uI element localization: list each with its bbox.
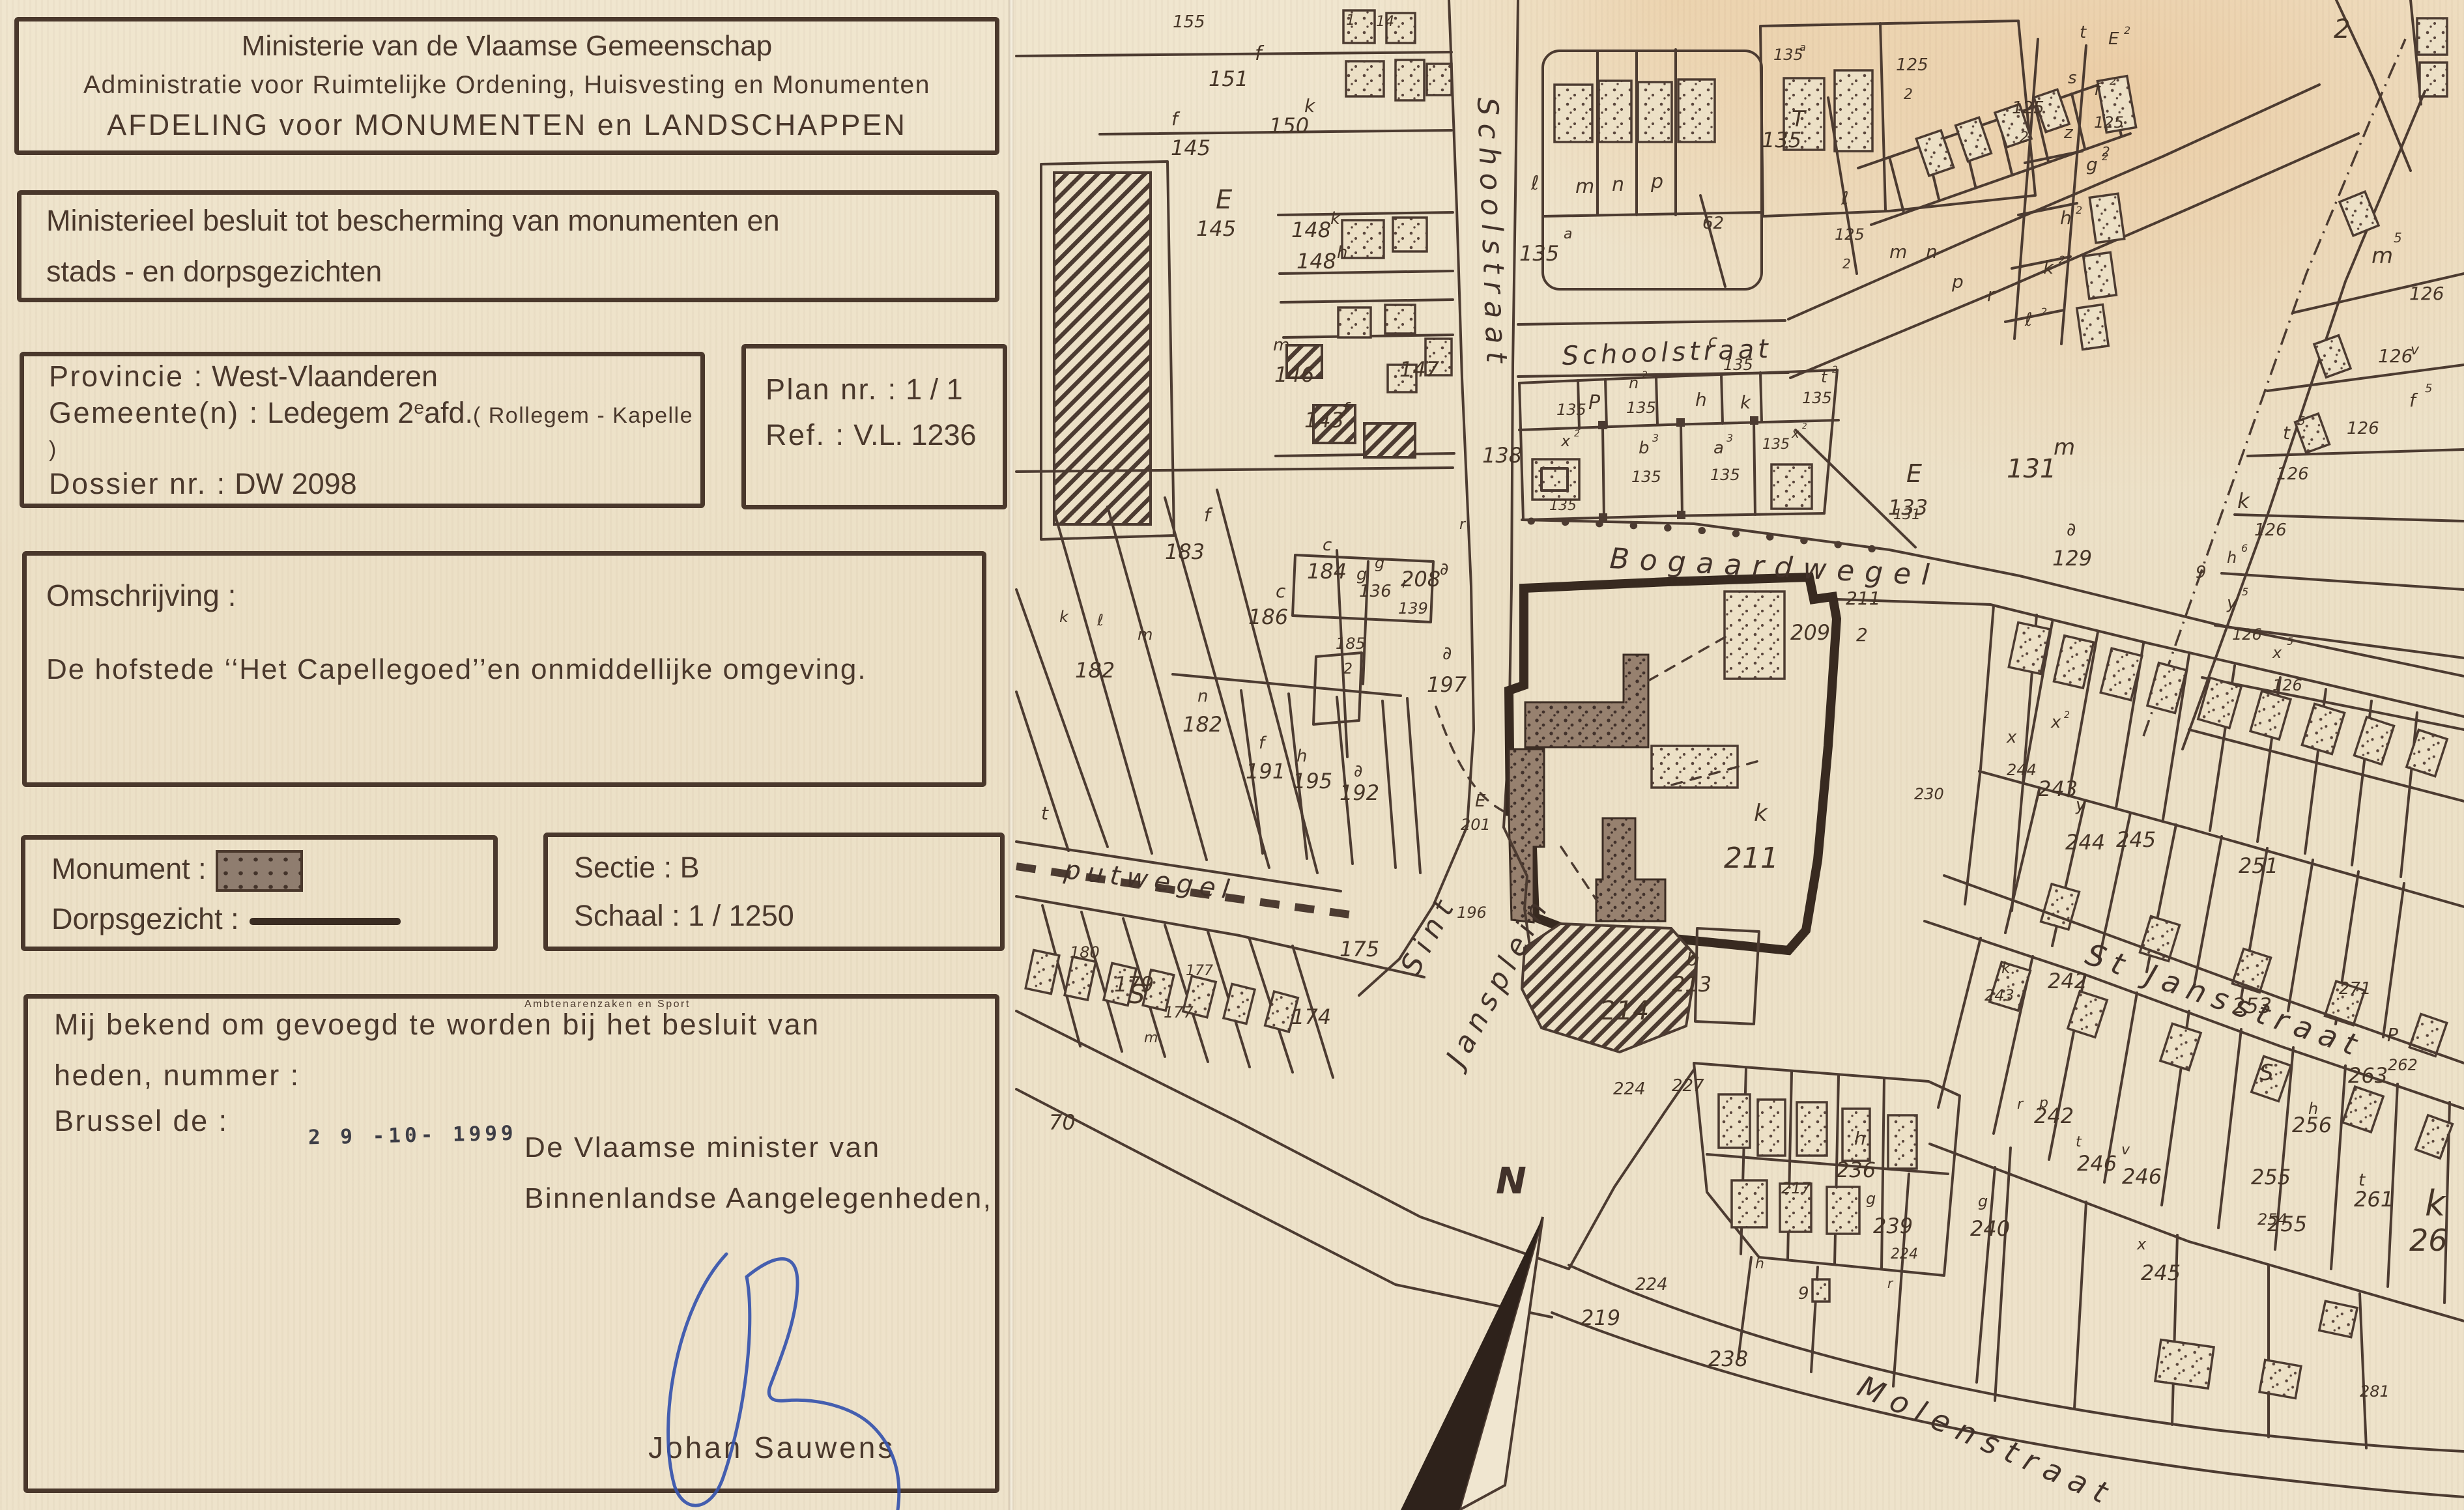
province-row: Provincie : West-Vlaanderen	[49, 360, 700, 393]
parcel-label: 239	[1873, 1214, 1913, 1238]
parcel-label: k	[2237, 489, 2250, 513]
parcel-label: 2	[1856, 624, 1868, 646]
parcel-label: 211	[1846, 588, 1880, 609]
parcel-label: 209	[1790, 620, 1830, 645]
parcel-label: h	[1695, 389, 1707, 410]
parcel-label: r	[1887, 1275, 1894, 1291]
certify-line2: heden, nummer :	[54, 1059, 300, 1092]
parcel-label: t	[2283, 422, 2291, 444]
parcel-label: 271	[2339, 979, 2371, 999]
parcel-label: E	[1475, 791, 1486, 811]
cadastral-map: N SchoolstraatSchoolstraatBogaardwegelSt…	[1003, 0, 2464, 1510]
plan-ref-box: Plan nr. : 1 / 1 Ref. : V.L. 1236	[741, 344, 1007, 509]
parcel-label: 195	[1293, 769, 1332, 793]
parcel-label: 242	[2048, 969, 2087, 993]
parcel-label: 148	[1296, 249, 1336, 274]
parcel-label: c	[1323, 535, 1332, 555]
parcel-label: 196	[1457, 904, 1487, 922]
monument-label: Monument :	[51, 852, 207, 885]
parcel-label: 246	[2077, 1151, 2117, 1176]
parcel-label: g	[1375, 554, 1384, 572]
scale-row: Schaal : 1 / 1250	[574, 899, 1000, 933]
parcel-label: 143	[1304, 408, 1344, 433]
section-row: Sectie : B	[574, 851, 1000, 885]
parcel-label: 5	[2298, 414, 2305, 428]
parcel-label: b	[1639, 438, 1650, 458]
parcel-label: x	[1791, 425, 1799, 441]
section-value: B	[680, 851, 700, 884]
parcel-label: 2	[1832, 365, 1838, 375]
parcel-label: 2	[2041, 306, 2047, 318]
monument-swatch	[216, 850, 303, 892]
certify-line1: Mij bekend om gevoegd te worden bij het …	[54, 1008, 820, 1042]
scale-value: 1 / 1250	[688, 899, 794, 932]
parcel-label: m	[1144, 1030, 1158, 1046]
parcel-label: x	[1560, 432, 1571, 450]
parcel-label: 129	[2052, 546, 2092, 571]
parcel-label: 2	[1904, 87, 1913, 103]
parcel-label: x	[2050, 713, 2061, 732]
street-label: Schoolstraat	[1470, 97, 1513, 371]
province-value: West-Vlaanderen	[212, 360, 438, 393]
parcel-label: 147	[1399, 357, 1440, 382]
parcel-label: ∂	[1442, 642, 1452, 664]
parcel-label: T	[1792, 106, 1807, 132]
parcel-label: 1	[1346, 12, 1355, 29]
parcel-label: c	[1276, 580, 1286, 602]
parcel-label: h	[2227, 548, 2237, 567]
parcel-label: 3	[1652, 432, 1659, 444]
street-label: St Jansstraat	[2081, 936, 2368, 1064]
monument-building	[1525, 655, 1648, 747]
parcel-label: 186	[1248, 605, 1288, 629]
parcel-label: 5	[2287, 635, 2293, 648]
parcel-label: 126	[2276, 464, 2309, 484]
parcel-label: 2	[2064, 710, 2070, 720]
parcel-label: 126	[2272, 676, 2302, 694]
parcel-label: 126	[2232, 625, 2262, 644]
section-label: Sectie :	[574, 851, 680, 884]
parcel-label: k	[1740, 392, 1752, 413]
parcel-label: 174	[1291, 1004, 1331, 1029]
parcel-label: k	[1754, 800, 1769, 827]
parcel-label: m	[2371, 243, 2393, 269]
parcel-label: 201	[1461, 816, 1491, 834]
parcel-label: n	[1629, 374, 1639, 392]
parcel-label: f	[1171, 108, 1181, 130]
parcel-label: 5	[2394, 230, 2402, 246]
parcel-label: p	[1951, 271, 1964, 292]
parcel-label: 9	[1798, 1284, 1809, 1303]
parcel-label: 177	[1164, 1003, 1194, 1021]
signature-ink	[638, 1225, 951, 1510]
description-label: Omschrijving :	[46, 578, 982, 613]
parcel-label: 14	[1376, 14, 1394, 30]
monument-building	[1596, 818, 1665, 921]
section-scale-box: Sectie : B Schaal : 1 / 1250	[543, 833, 1005, 951]
certify-line3: Brussel de :	[54, 1104, 229, 1138]
parcel-label: E	[2108, 29, 2119, 49]
parcel-label: 135	[1762, 436, 1790, 453]
parcel-label: 126	[2347, 419, 2379, 438]
parcel-label: 125	[1896, 55, 1928, 75]
parcel-label: 246	[2122, 1164, 2162, 1189]
parcel-label: 197	[1427, 672, 1467, 697]
parcel-label: 254	[2257, 1210, 2287, 1229]
parcel-label: 184	[1307, 559, 1347, 584]
parcel-label: 240	[1970, 1216, 2010, 1241]
plan-value: 1 / 1	[906, 373, 963, 406]
parcel-label: 243	[1984, 986, 2014, 1004]
parcel-label: m	[2054, 434, 2075, 461]
parcel-label: n	[1612, 173, 1624, 196]
parcel-label: 182	[1075, 658, 1115, 683]
parcel-label: 133	[1888, 495, 1928, 520]
parcel-label: ∂	[2067, 519, 2076, 540]
parcel-label: E	[1216, 185, 1233, 215]
parcel-label: 135	[1631, 468, 1661, 486]
parcel-label: f	[1259, 734, 1267, 753]
scanned-decree-page: Ministerie van de Vlaamse Gemeenschap Ad…	[0, 0, 2464, 1510]
parcel-label: 150	[1269, 113, 1309, 138]
parcel-label: 9	[2196, 563, 2207, 582]
dorpsgezicht-line-swatch	[250, 918, 401, 925]
parcel-label: P	[2387, 1024, 2398, 1046]
parcel-label: h	[1296, 747, 1307, 766]
parcel-label: 2	[2124, 24, 2130, 36]
municipality-row: Gemeente(n) : Ledegem 2eafd.( Rollegem -…	[49, 396, 700, 464]
parcel-label: 6	[2241, 542, 2248, 554]
parcel-label: ℓ	[1530, 172, 1539, 195]
parcel-label: t	[2080, 23, 2087, 42]
parcel-label: g	[2086, 154, 2098, 175]
parcel-label: r	[2017, 1096, 2024, 1113]
parcel-label: 2	[2020, 130, 2029, 146]
parcel-label: h	[1337, 243, 1347, 263]
parcel-label: 135	[1556, 401, 1586, 419]
parcel-label: 255	[2251, 1165, 2291, 1189]
parcel-label: 191	[1246, 759, 1285, 784]
parcel-label: t	[2358, 1171, 2366, 1190]
dossier-label: Dossier nr. :	[49, 467, 227, 500]
parcel-label: 244	[2007, 761, 2037, 779]
parcel-label: 135	[1773, 46, 1803, 64]
parcel-label: v	[2121, 1142, 2130, 1158]
parcel-label: 262	[2388, 1056, 2418, 1074]
date-stamp: 2 9 -10- 1999	[308, 1122, 517, 1150]
parcel-label: p	[2039, 1095, 2048, 1111]
parcel-209-building	[1725, 591, 1784, 679]
parcel-label: a	[1799, 41, 1806, 53]
municipality-label: Gemeente(n) :	[49, 396, 259, 429]
dossier-row: Dossier nr. : DW 2098	[49, 467, 700, 501]
parcel-label: f	[2409, 390, 2418, 411]
parcel-label: 135	[1519, 241, 1559, 266]
parcel-label: 213	[1672, 972, 1712, 997]
parcel-label: k	[1059, 608, 1069, 626]
parcel-label: x	[2272, 644, 2282, 662]
parcel-label: 243	[2038, 776, 2078, 801]
parcel-label: 245	[2141, 1261, 2181, 1285]
parcel-label: 251	[2239, 853, 2278, 878]
parcel-label: 180	[1070, 943, 1100, 962]
ministry-title: Ministerie van de Vlaamse Gemeenschap	[19, 30, 995, 63]
parcel-label: ℓ	[2024, 309, 2033, 330]
municipality-value2: afd.	[424, 396, 473, 429]
parcel-label: 224	[1613, 1079, 1646, 1099]
legend-monument-row: Monument :	[51, 850, 493, 892]
description-box: Omschrijving : De hofstede ‘‘Het Capelle…	[22, 551, 986, 787]
street-label: Molenstraat	[1853, 1369, 2121, 1510]
parcel-label: 261	[2354, 1187, 2394, 1212]
parcel-label: k	[1330, 209, 1341, 229]
decree-box: Ministerieel besluit tot bescherming van…	[17, 190, 999, 302]
parcel-label: 185	[1336, 634, 1366, 653]
ref-label: Ref. :	[766, 418, 846, 451]
parcel-label: 145	[1196, 216, 1236, 241]
parcel-label: 211	[1724, 842, 1779, 875]
parcel-label: f	[1204, 504, 1213, 526]
parcel-label: h	[2060, 207, 2072, 229]
parcel-label: k	[2425, 1183, 2447, 1224]
parcel-label: ℓ	[1841, 188, 1849, 209]
parcel-label: 253	[2232, 993, 2272, 1018]
description-text: De hofstede ‘‘Het Capellegoed’’en onmidd…	[46, 653, 982, 686]
plan-label: Plan nr. :	[766, 373, 898, 406]
parcel-label: y	[2075, 795, 2086, 815]
north-label: N	[1496, 1160, 1526, 1203]
parcel-label: m	[1138, 625, 1153, 644]
minister-line2: Binnenlandse Aangelegenheden,	[524, 1182, 992, 1215]
parcel-label: t	[1041, 803, 1049, 824]
parcel-label: P	[1588, 392, 1601, 414]
parcel-label: 2	[2076, 204, 2082, 216]
parcel-label: 62	[1702, 214, 1724, 233]
parcel-label: a	[1713, 438, 1724, 458]
parcel-label: k	[2043, 257, 2055, 278]
hatched-church-parcel	[1522, 924, 1697, 1052]
parcel-label: ∂	[1354, 762, 1362, 781]
minister-line1: De Vlaamse minister van	[524, 1132, 881, 1164]
parcel-label: 227	[1672, 1076, 1704, 1096]
parcel-label: 183	[1165, 539, 1205, 564]
parcel-label: ∂	[1440, 560, 1448, 579]
parcel-label: m	[1273, 335, 1289, 355]
parcel-label: ℓ	[1096, 611, 1104, 629]
parcel-label: 3	[1726, 432, 1733, 444]
parcel-label: 2	[2110, 75, 2116, 87]
parcel-label: 139	[1398, 599, 1428, 618]
ref-value: V.L. 1236	[853, 418, 977, 451]
municipality-value: Ledegem 2	[267, 396, 414, 429]
parcel-label: h	[2308, 1100, 2318, 1118]
parcel-label: x	[2006, 728, 2017, 747]
parcel-label: 217	[1781, 1179, 1812, 1197]
parcel-label: E	[1906, 459, 1922, 488]
parcel-label: 263	[2348, 1063, 2388, 1088]
administration-title: Administratie voor Ruimtelijke Ordening,…	[19, 71, 995, 100]
parcel-label: 2	[2334, 14, 2350, 44]
parcel-label: r	[1459, 517, 1467, 533]
parcel-label: s	[2068, 68, 2077, 88]
parcel-label: 155	[1173, 12, 1205, 32]
parcel-label: 244	[2065, 830, 2105, 855]
parcel-label: g	[1978, 1192, 1988, 1210]
location-box: Provincie : West-Vlaanderen Gemeente(n) …	[20, 352, 705, 508]
parcel-label: 26	[2409, 1223, 2448, 1258]
parcel-label: 2	[1842, 256, 1851, 272]
parcel-label: 2	[1802, 421, 1807, 431]
parcel-label: 224	[1891, 1246, 1918, 1262]
parcel-label: t	[1821, 368, 1828, 386]
parcel-label: 126	[2409, 283, 2444, 304]
parcel-label: 177	[1186, 963, 1213, 979]
parcel-label: 2	[2059, 253, 2065, 266]
parcel-label: p	[1650, 171, 1663, 193]
parcel-label: 125	[1835, 225, 1865, 244]
parcel-label: 2	[2102, 150, 2108, 163]
parcel-label: 125	[2094, 113, 2124, 132]
parcel-label: 182	[1182, 712, 1222, 737]
parcel-label: 135	[1802, 389, 1832, 407]
parcel-label: 70	[1049, 1110, 1076, 1135]
decree-line2: stads - en dorpsgezichten	[46, 246, 995, 297]
parcel-label: 5	[2242, 586, 2248, 598]
parcel-label: 126	[2378, 345, 2413, 367]
parcel-label: 179	[1114, 972, 1154, 997]
parcel-label: y	[2226, 593, 2237, 613]
parcel-label: t	[2076, 1134, 2082, 1150]
parcel-label: b	[1686, 948, 1698, 970]
parcel-label: 2	[1343, 661, 1353, 677]
province-label: Provincie :	[49, 360, 204, 393]
parcel-label: 131	[2007, 454, 2056, 484]
parcel-label: 135	[1626, 399, 1656, 417]
parcel-label: c	[1708, 332, 1717, 351]
parcel-label: n	[1926, 241, 1938, 263]
legend-box: Monument : Dorpsgezicht :	[21, 835, 498, 951]
minister-line3: Ambtenarenzaken en Sport	[524, 999, 691, 1010]
parcel-label: 230	[1914, 785, 1944, 803]
parcel-label: 224	[1635, 1275, 1668, 1294]
parcel-label: g	[1866, 1189, 1876, 1208]
parcel-label: 219	[1581, 1305, 1620, 1330]
parcel-label: 135	[1549, 498, 1577, 514]
parcel-label: m	[1889, 241, 1907, 263]
parcel-label: 245	[2116, 827, 2156, 852]
parcel-label: 2	[1642, 370, 1648, 380]
parcel-label: 145	[1171, 135, 1211, 160]
parcel-label: r	[1987, 284, 1996, 306]
parcel-label: 238	[1708, 1346, 1748, 1371]
header-box: Ministerie van de Vlaamse Gemeenschap Ad…	[14, 17, 999, 155]
street-label: Sint	[1394, 889, 1465, 981]
dossier-value: DW 2098	[235, 467, 357, 500]
parcel-label: 5	[2425, 382, 2432, 395]
parcel-label: k	[2001, 959, 2011, 977]
parcel-label: 175	[1339, 937, 1379, 962]
dorpsgezicht-label: Dorpsgezicht :	[51, 902, 239, 935]
parcel-label: v	[2411, 342, 2420, 358]
parcel-label: 151	[1209, 66, 1248, 91]
ref-row: Ref. : V.L. 1236	[766, 412, 1003, 458]
parcel-label: 138	[1482, 443, 1522, 468]
parcel-label: 281	[2360, 1382, 2390, 1401]
parcel-label: 148	[1291, 218, 1331, 242]
parcel-label: 214	[1599, 996, 1649, 1026]
parcel-label: 125	[2012, 98, 2044, 118]
plan-row: Plan nr. : 1 / 1	[766, 367, 1003, 412]
parcel-label: m	[1575, 175, 1594, 198]
parcel-label: 192	[1339, 780, 1379, 805]
parcel-label: 146	[1274, 362, 1314, 387]
parcel-label: 135	[1710, 466, 1740, 484]
parcel-label: 126	[2254, 520, 2287, 540]
department-title: AFDELING voor MONUMENTEN en LANDSCHAPPEN	[19, 108, 995, 142]
parcel-label: n	[1197, 687, 1208, 706]
parcel-label: h	[1854, 1128, 1866, 1149]
decree-line1: Ministerieel besluit tot bescherming van…	[46, 195, 995, 246]
parcel-label: S	[2259, 1060, 2274, 1086]
parcel-label: 236	[1836, 1158, 1876, 1182]
parcel-label: 2	[1574, 429, 1580, 439]
scale-label: Schaal :	[574, 899, 688, 932]
parcel-label: x	[2136, 1235, 2147, 1253]
municipality-sup: e	[414, 397, 424, 418]
parcel-label: a	[1564, 226, 1572, 242]
parcel-label: 208	[1401, 567, 1440, 591]
parcel-label: 135	[1723, 356, 1753, 374]
legend-dorpsgezicht-row: Dorpsgezicht :	[51, 902, 493, 936]
parcel-label: h	[1755, 1256, 1764, 1272]
parcel-label: z	[2063, 123, 2074, 143]
parcel-label: 136	[1359, 582, 1392, 601]
